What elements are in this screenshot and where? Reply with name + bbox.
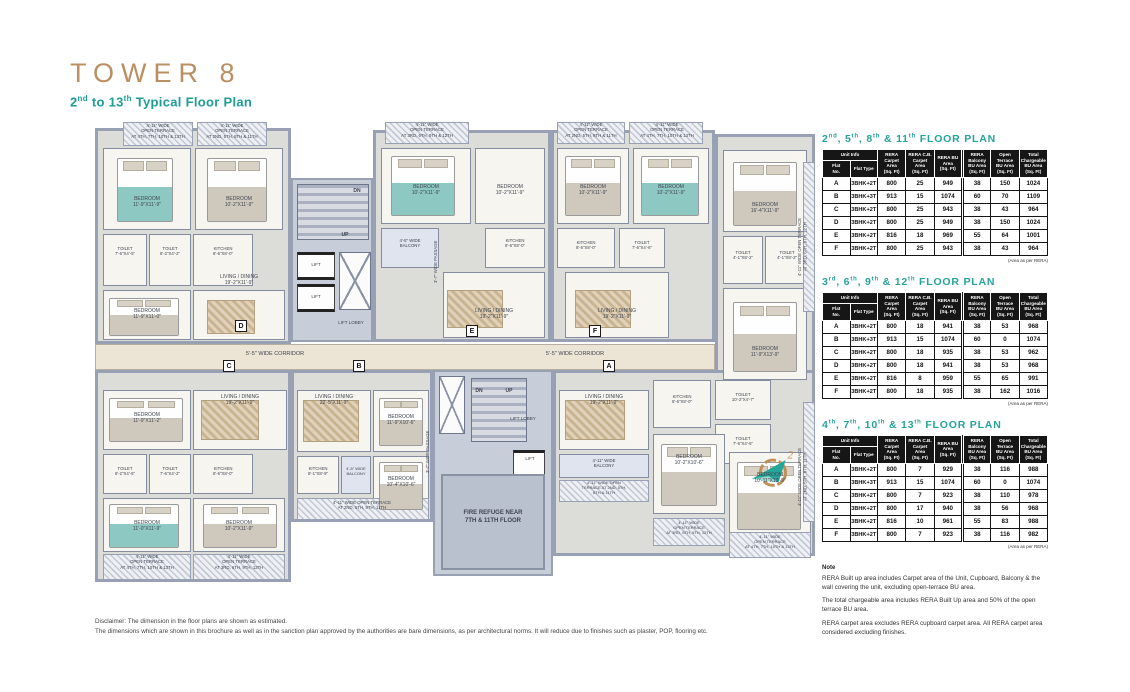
table-header-cell: Total Chargeable BU Area (Sq. Ft) (1019, 435, 1047, 463)
table-row: F3BHK+2T800259433843964 (823, 242, 1048, 255)
table-row: D3BHK+2T80025949381501024 (823, 216, 1048, 229)
table-cell: 38 (962, 528, 990, 541)
table-cell: 800 (878, 489, 906, 502)
table-cell: 43 (991, 203, 1019, 216)
table-title: 2nd, 5th, 8th & 11th FLOOR PLAN (822, 133, 1048, 145)
bed-icon (733, 302, 797, 372)
table-cell: 959 (934, 372, 962, 385)
table-cell: 70 (991, 190, 1019, 203)
table-row: D3BHK+2T800179403856968 (823, 502, 1048, 515)
table-row: E3BHK+2T8161896955641001 (823, 229, 1048, 242)
table-cell: 913 (878, 190, 906, 203)
table-cell: 943 (934, 242, 962, 255)
plan-label: TOILET 4'-1"X8'-2" (723, 250, 763, 261)
table-cell: 3BHK+2T (850, 320, 878, 333)
table-cell: 1001 (1019, 229, 1047, 242)
plan-label: 4'-11" WIDE OPEN TERRACE AT 4TH, 7TH, 10… (123, 123, 193, 139)
table-cell: 816 (878, 515, 906, 528)
table-cell: 17 (906, 502, 934, 515)
table-cell: 10 (906, 515, 934, 528)
table-row: E3BHK+2T816109615583988 (823, 515, 1048, 528)
table-cell: D (823, 359, 851, 372)
plan-label: KITCHEN 8'-6"X8'-0" (485, 238, 545, 249)
table-cell: 116 (991, 463, 1019, 476)
table-header-cell: Flat Type (850, 161, 878, 178)
table-cell: 988 (1019, 463, 1047, 476)
table-cell: 800 (878, 463, 906, 476)
table-header-cell: Open Terrace BU Area (Sq. Ft) (991, 292, 1019, 320)
table-cell: 816 (878, 229, 906, 242)
table-cell: 800 (878, 242, 906, 255)
table-cell: 3BHK+2T (850, 346, 878, 359)
table-cell: 38 (962, 385, 990, 398)
table-cell: 1074 (1019, 476, 1047, 489)
table-cell: 3BHK+2T (850, 489, 878, 502)
table-cell: 53 (991, 359, 1019, 372)
plan-label: 4'-11" WIDE OPEN TERRACE AT 2ND, 5TH, 8T… (797, 412, 808, 542)
table-cell: 15 (906, 333, 934, 346)
plan-label: LIVING / DINING 19'-2"X11'-9" (565, 308, 669, 321)
plan-label: 4'-11" WIDE OPEN TERRACE AT 2ND, 5TH, 8T… (197, 123, 267, 139)
table-header-cell: RERA Balcony BU Area (Sq. Ft) (962, 150, 990, 178)
table-cell: 25 (906, 216, 934, 229)
svg-text:2: 2 (787, 448, 793, 461)
table-cell: 949 (934, 216, 962, 229)
table-row: F3BHK+2T800792338116982 (823, 528, 1048, 541)
table-cell: B (823, 476, 851, 489)
unit-marker-c: C (223, 360, 235, 372)
table-cell: 3BHK+2T (850, 359, 878, 372)
table-cell: 3BHK+2T (850, 203, 878, 216)
table-header-cell: Flat No. (823, 446, 851, 463)
plan-label: LIFT LOBBY (327, 320, 375, 326)
plan-label: KITCHEN 8'-6"X8'-0" (193, 466, 253, 477)
table-cell: 800 (878, 359, 906, 372)
table-cell: 38 (962, 502, 990, 515)
disclaimer-line: The dimensions which are shown in this b… (95, 627, 795, 637)
table-cell: 7 (906, 528, 934, 541)
table-header-cell: RERA Carpet Area (Sq. Ft) (878, 435, 906, 463)
plan-label: TOILET 7'-6"X4'-2" (149, 466, 191, 477)
table-cell: 64 (991, 229, 1019, 242)
plan-label: 4'-11" WIDE OPEN TERRACE AT 2ND, 5TH, 8T… (555, 122, 627, 138)
table-cell: 978 (1019, 489, 1047, 502)
table-cell: 3BHK+2T (850, 463, 878, 476)
table-cell: 968 (1019, 359, 1047, 372)
bed-icon (207, 158, 267, 222)
table-cell: 3BHK+2T (850, 216, 878, 229)
plan-label: BEDROOM 10'-2"X11'-9" (383, 184, 469, 197)
table-row: C3BHK+2T800189353853962 (823, 346, 1048, 359)
plan-label: 4'-11" WIDE BALCONY (561, 458, 647, 469)
header: TOWER 8 2nd to 13th Typical Floor Plan (70, 58, 252, 109)
note-line: The total chargeable area includes RERA … (822, 597, 1048, 615)
table-cell: 941 (934, 359, 962, 372)
table-header-cell: RERA Carpet Area (Sq. Ft) (878, 150, 906, 178)
table-cell: 3BHK+2T (850, 177, 878, 190)
table-cell: 56 (991, 502, 1019, 515)
table-cell: 15 (906, 476, 934, 489)
table-cell: 38 (962, 242, 990, 255)
table-cell: F (823, 385, 851, 398)
table-cell: 3BHK+2T (850, 229, 878, 242)
table-header-cell: Total Chargeable BU Area (Sq. Ft) (1019, 150, 1047, 178)
table-row: A3BHK+2T80025949381501024 (823, 177, 1048, 190)
table-cell: 3BHK+2T (850, 385, 878, 398)
table-cell: 3BHK+3T (850, 190, 878, 203)
bed-icon (733, 162, 797, 226)
table-header-cell: RERA Balcony BU Area (Sq. Ft) (962, 292, 990, 320)
table-row: C3BHK+2T800259433843964 (823, 203, 1048, 216)
table-cell: 43 (991, 242, 1019, 255)
table-cell: 943 (934, 203, 962, 216)
table-cell: 60 (962, 190, 990, 203)
plan-label: LIFT LOBBY (495, 416, 551, 422)
table-cell: 55 (962, 372, 990, 385)
floor-plan-table: Unit InfoRERA Carpet Area (Sq. Ft)RERA C… (822, 435, 1048, 542)
table-header-cell: Flat Type (850, 446, 878, 463)
table-row: A3BHK+2T800792938116988 (823, 463, 1048, 476)
table-cell: 964 (1019, 203, 1047, 216)
table-header-cell: Total Chargeable BU Area (Sq. Ft) (1019, 292, 1047, 320)
plan-shaft (439, 376, 465, 434)
dining-rug (207, 300, 255, 334)
table-row: B3BHK+3T91315107460701109 (823, 190, 1048, 203)
disclaimer: Disclaimer: The dimension in the floor p… (95, 617, 795, 637)
table-cell: 3BHK+2T (850, 502, 878, 515)
table-cell: 150 (991, 216, 1019, 229)
plan-label: BEDROOM 11'-9"X11'-0" (105, 308, 189, 321)
table-cell: 0 (991, 333, 1019, 346)
plan-label: BEDROOM 11'-9"X10'-6" (371, 414, 431, 427)
table-cell: 964 (1019, 242, 1047, 255)
table-row: C3BHK+2T800792338110978 (823, 489, 1048, 502)
table-cell: 3BHK+2T (850, 242, 878, 255)
unit-marker-a: A (603, 360, 615, 372)
table-cell: 913 (878, 476, 906, 489)
table-cell: F (823, 242, 851, 255)
plan-label: 4'-11" WIDE OPEN TERRACE AT 3RD, 6TH, 9T… (383, 122, 471, 138)
table-cell: 1024 (1019, 216, 1047, 229)
plan-label: UP (335, 232, 355, 238)
table-cell: 1016 (1019, 385, 1047, 398)
table-cell: 3BHK+2T (850, 515, 878, 528)
table-cell: 3BHK+3T (850, 333, 878, 346)
plan-label: TOILET 8'-2"X4'-5" (103, 466, 147, 477)
table-header-cell: Flat No. (823, 303, 851, 320)
unit-marker-d: D (235, 320, 247, 332)
table-cell: 962 (1019, 346, 1047, 359)
table-cell: 38 (962, 489, 990, 502)
table-cell: 991 (1019, 372, 1047, 385)
plan-label: KITCHEN 8'-6"X8'-0" (557, 240, 615, 251)
table-cell: 18 (906, 346, 934, 359)
table-cell: 1074 (934, 476, 962, 489)
table-title: 3rd, 6th, 9th & 12th FLOOR PLAN (822, 276, 1048, 288)
table-cell: 18 (906, 229, 934, 242)
table-cell: B (823, 333, 851, 346)
table-cell: 83 (991, 515, 1019, 528)
table-footnote: (Area as per RERA) (822, 544, 1048, 549)
table-cell: 38 (962, 463, 990, 476)
table-cell: 110 (991, 489, 1019, 502)
table-cell: 3BHK+3T (850, 476, 878, 489)
table-cell: 913 (878, 333, 906, 346)
table-cell: 923 (934, 489, 962, 502)
table-cell: 8 (906, 372, 934, 385)
plan-label: BEDROOM 11'-0"X11'-9" (105, 520, 189, 533)
table-cell: 982 (1019, 528, 1047, 541)
plan-label: BEDROOM 11'-9"X11'-2" (105, 412, 189, 425)
table-cell: 968 (1019, 502, 1047, 515)
plan-label: BEDROOM 10'-2"X11'-9" (193, 520, 285, 533)
table-cell: 55 (962, 515, 990, 528)
table-cell: 800 (878, 346, 906, 359)
table-cell: 800 (878, 216, 906, 229)
table-header-cell: Flat Type (850, 303, 878, 320)
plan-label: BEDROOM 10'-2"X11'-9" (559, 184, 627, 197)
table-header-cell: RERA C.B. Carpet Area (Sq. Ft) (906, 150, 934, 178)
floor-plan-table: Unit InfoRERA Carpet Area (Sq. Ft)RERA C… (822, 149, 1048, 256)
table-cell: 38 (962, 203, 990, 216)
table-cell: 7 (906, 489, 934, 502)
table-cell: E (823, 372, 851, 385)
plan-label: TOILET 7'-6"X4'-6" (715, 436, 771, 447)
table-cell: 18 (906, 359, 934, 372)
table-cell: 968 (1019, 320, 1047, 333)
floor-plan-table-2: 3rd, 6th, 9th & 12th FLOOR PLANUnit Info… (822, 276, 1048, 406)
table-header-cell: RERA Carpet Area (Sq. Ft) (878, 292, 906, 320)
floor-plan-table-3: 4th, 7th, 10th & 13th FLOOR PLANUnit Inf… (822, 419, 1048, 549)
plan-shaft (339, 252, 371, 310)
table-cell: D (823, 216, 851, 229)
table-cell: D (823, 502, 851, 515)
floor-plan-table: Unit InfoRERA Carpet Area (Sq. Ft)RERA C… (822, 292, 1048, 399)
table-row: B3BHK+3T9131510746001074 (823, 333, 1048, 346)
plan-label: BEDROOM 10'-2"X11'-9" (197, 196, 281, 209)
bed-icon (117, 158, 173, 222)
plan-label: 4'-11" WIDE OPEN TERRACE AT 2ND, 5TH, 8T… (295, 500, 429, 511)
table-row: B3BHK+3T9131510746001074 (823, 476, 1048, 489)
table-footnote: (Area as per RERA) (822, 401, 1048, 406)
plan-label: 4'-11" WIDE OPEN TERRACE AT 3RD, 6TH, 9T… (193, 554, 285, 570)
table-cell: 65 (991, 372, 1019, 385)
table-cell: E (823, 229, 851, 242)
table-cell: 941 (934, 320, 962, 333)
table-cell: 25 (906, 242, 934, 255)
table-cell: B (823, 190, 851, 203)
unit-marker-e: E (466, 325, 478, 337)
table-header-cell: Unit Info (823, 292, 878, 303)
table-cell: 3BHK+2T (850, 372, 878, 385)
table-row: D3BHK+2T800189413853968 (823, 359, 1048, 372)
plan-label: 4'-11" WIDE OPEN TERRACE AT 3RD, 6TH, 9T… (797, 182, 808, 312)
plan-label: 3'-7" WIDE PASSAGE (433, 222, 438, 302)
table-cell: F (823, 528, 851, 541)
table-cell: 935 (934, 346, 962, 359)
plan-label: KITCHEN 8'-1"X8'-9" (295, 466, 341, 477)
plan-label: TOILET 7'-6"X4'-5" (103, 246, 147, 257)
plan-label: LIFT (515, 456, 545, 462)
table-cell: 1074 (1019, 333, 1047, 346)
table-cell: 15 (906, 190, 934, 203)
table-cell: 38 (962, 177, 990, 190)
table-cell: A (823, 463, 851, 476)
table-cell: 25 (906, 177, 934, 190)
table-cell: 929 (934, 463, 962, 476)
table-cell: 949 (934, 177, 962, 190)
table-cell: 800 (878, 320, 906, 333)
table-footnote: (Area as per RERA) (822, 258, 1048, 263)
floor-plan-table-1: 2nd, 5th, 8th & 11th FLOOR PLANUnit Info… (822, 133, 1048, 263)
plan-label: BEDROOM 10'-2"X11'-9" (635, 184, 707, 197)
note-title: Note (822, 565, 1048, 571)
table-cell: A (823, 320, 851, 333)
plan-label: DN (469, 388, 489, 394)
plan-label: KITCHEN 8'-6"X8'-0" (653, 394, 711, 405)
plan-label: LIVING / DINING 19'-2"X11'-9" (443, 308, 545, 321)
plan-label: LIFT (297, 294, 335, 300)
plan-label: 4'-5" WIDE BALCONY (339, 466, 373, 476)
bed-blanket (738, 493, 800, 529)
unit-marker-b: B (353, 360, 365, 372)
bed-blanket (662, 472, 716, 505)
page-subtitle: 2nd to 13th Typical Floor Plan (70, 94, 252, 109)
table-header-cell: RERA C.B. Carpet Area (Sq. Ft) (906, 435, 934, 463)
plan-label: LIFT (297, 262, 335, 268)
plan-label: 4'-11" WIDE OPEN TERRACE AT 3RD, 6TH, 9T… (653, 520, 725, 535)
plan-label: DN (347, 188, 367, 194)
table-cell: 38 (962, 359, 990, 372)
plan-label: 3'-7" WIDE PASSAGE (425, 412, 430, 492)
plan-label: LIVING / DINING 19'-2"X11'-9" (193, 394, 287, 407)
table-cell: 162 (991, 385, 1019, 398)
table-cell: 969 (934, 229, 962, 242)
plan-label: 4'-5" WIDE BALCONY (381, 238, 439, 249)
table-header-cell: RERA Balcony BU Area (Sq. Ft) (962, 435, 990, 463)
plan-label: 5'-5" WIDE CORRIDOR (215, 351, 335, 358)
table-row: F3BHK+2T80018935381621016 (823, 385, 1048, 398)
table-cell: 923 (934, 528, 962, 541)
table-cell: 150 (991, 177, 1019, 190)
table-cell: 1074 (934, 333, 962, 346)
table-header-cell: RERA BU Area (Sq. Ft) (934, 150, 962, 178)
note-block: Note RERA Built up area includes Carpet … (822, 565, 1048, 638)
plan-label: 4'-11" WIDE OPEN TERRACE AT 4TH, 7TH, 10… (103, 554, 191, 570)
table-cell: 1074 (934, 190, 962, 203)
table-cell: 1024 (1019, 177, 1047, 190)
table-header-cell: Unit Info (823, 435, 878, 446)
plan-label: FIRE REFUGE NEAR 7TH & 11TH FLOOR (451, 510, 535, 525)
table-header-cell: Open Terrace BU Area (Sq. Ft) (991, 150, 1019, 178)
table-cell: 116 (991, 528, 1019, 541)
table-cell: 38 (962, 320, 990, 333)
table-cell: 3BHK+2T (850, 528, 878, 541)
table-cell: A (823, 177, 851, 190)
note-line: RERA carpet area excludes RERA cupboard … (822, 620, 1048, 638)
table-cell: E (823, 515, 851, 528)
table-cell: 53 (991, 320, 1019, 333)
plan-label: BEDROOM 11'-9"X13'-9" (725, 346, 805, 359)
table-cell: 935 (934, 385, 962, 398)
floor-plan: 4'-11" WIDE OPEN TERRACE AT 4TH, 7TH, 10… (95, 122, 815, 587)
table-row: A3BHK+2T800189413853968 (823, 320, 1048, 333)
table-cell: 18 (906, 320, 934, 333)
plan-label: 5'-5" WIDE CORRIDOR (515, 351, 635, 358)
table-title: 4th, 7th, 10th & 13th FLOOR PLAN (822, 419, 1048, 431)
plan-label: LIVING / DINING 19'-2"X11'-9" (557, 394, 651, 407)
table-cell: 800 (878, 203, 906, 216)
plan-label: BEDROOM 11'-9"X11'-9" (105, 196, 189, 209)
table-cell: 25 (906, 203, 934, 216)
unit-marker-f: F (589, 325, 601, 337)
plan-label: KITCHEN 8'-6"X8'-0" (193, 246, 253, 257)
plan-label: LIVING / DINING 19'-2"X11'-9" (193, 274, 285, 287)
table-cell: 800 (878, 502, 906, 515)
page: TOWER 8 2nd to 13th Typical Floor Plan 4… (0, 0, 1130, 692)
table-cell: 7 (906, 463, 934, 476)
plan-label: 4'-11" WIDE OPEN TERRACE AT 2ND, 5TH, 8T… (561, 480, 647, 495)
table-cell: 988 (1019, 515, 1047, 528)
table-cell: 18 (906, 385, 934, 398)
table-cell: C (823, 346, 851, 359)
table-cell: 38 (962, 346, 990, 359)
table-header-cell: Open Terrace BU Area (Sq. Ft) (991, 435, 1019, 463)
page-title: TOWER 8 (70, 58, 252, 89)
table-cell: 961 (934, 515, 962, 528)
plan-label: BEDROOM 10'-2"X10'-6" (655, 454, 723, 467)
tables-column: 2nd, 5th, 8th & 11th FLOOR PLANUnit Info… (822, 133, 1048, 643)
table-cell: 940 (934, 502, 962, 515)
table-cell: 800 (878, 528, 906, 541)
table-row: E3BHK+2T81689595565991 (823, 372, 1048, 385)
table-cell: 60 (962, 333, 990, 346)
table-cell: 800 (878, 385, 906, 398)
table-cell: 0 (991, 476, 1019, 489)
table-header-cell: Unit Info (823, 150, 878, 161)
table-cell: C (823, 489, 851, 502)
plan-label: BEDROOM 10'-2"X11'-9" (477, 184, 543, 197)
plan-label: 4'-11" WIDE OPEN TERRACE AT 4TH, 7TH, 10… (629, 122, 705, 138)
note-line: RERA Built up area includes Carpet area … (822, 575, 1048, 593)
table-cell: 60 (962, 476, 990, 489)
table-cell: 38 (962, 216, 990, 229)
plan-label: TOILET 8'-2"X4'-2" (149, 246, 191, 257)
table-cell: 800 (878, 177, 906, 190)
brand-logo: 2 (746, 446, 800, 494)
table-cell: C (823, 203, 851, 216)
plan-label: BEDROOM 10'-4"X10'-6" (371, 476, 431, 489)
table-cell: 53 (991, 346, 1019, 359)
plan-label: TOILET 7'-6"X4'-6" (619, 240, 665, 251)
table-header-cell: RERA BU Area (Sq. Ft) (934, 292, 962, 320)
table-header-cell: RERA C.B. Carpet Area (Sq. Ft) (906, 292, 934, 320)
plan-room (149, 234, 191, 286)
table-cell: 816 (878, 372, 906, 385)
table-header-cell: RERA BU Area (Sq. Ft) (934, 435, 962, 463)
table-cell: 55 (962, 229, 990, 242)
plan-label: LIVING / DINING 22'-5"X11'-9" (295, 394, 373, 407)
table-header-cell: Flat No. (823, 161, 851, 178)
table-cell: 1109 (1019, 190, 1047, 203)
plan-label: UP (499, 388, 519, 394)
disclaimer-line: Disclaimer: The dimension in the floor p… (95, 617, 795, 627)
plan-room (103, 234, 147, 286)
plan-label: TOILET 10'-2"X4'-7" (715, 392, 771, 403)
plan-label: BEDROOM 16'-4"X11'-9" (725, 202, 805, 215)
